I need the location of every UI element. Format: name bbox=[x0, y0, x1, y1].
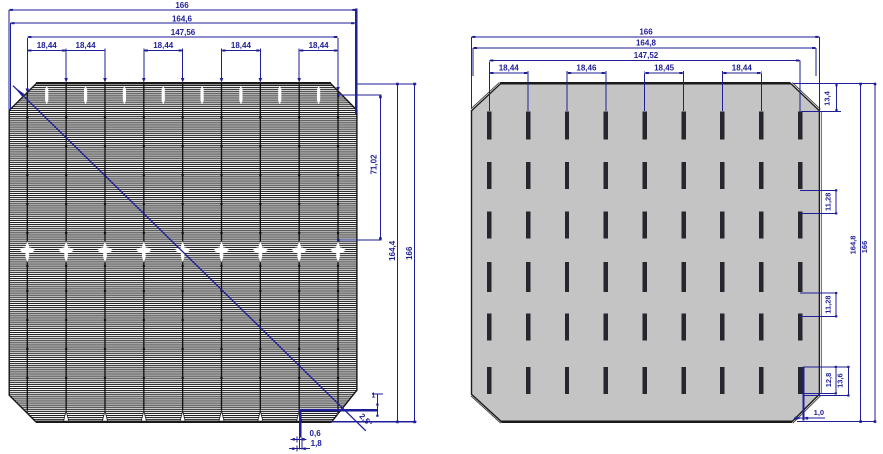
svg-text:147,56: 147,56 bbox=[171, 28, 196, 37]
svg-text:18,46: 18,46 bbox=[576, 64, 597, 73]
svg-text:164,4: 164,4 bbox=[388, 240, 397, 261]
svg-text:1,8: 1,8 bbox=[311, 439, 323, 448]
svg-text:13,6: 13,6 bbox=[836, 373, 845, 388]
svg-text:166: 166 bbox=[175, 1, 189, 10]
svg-text:166: 166 bbox=[639, 28, 653, 37]
svg-text:71,02: 71,02 bbox=[369, 154, 378, 175]
svg-text:166: 166 bbox=[405, 246, 414, 260]
svg-text:164,8: 164,8 bbox=[848, 236, 857, 255]
svg-text:18,44: 18,44 bbox=[732, 64, 753, 73]
svg-text:11,28: 11,28 bbox=[823, 193, 832, 211]
svg-text:18,44: 18,44 bbox=[37, 41, 58, 50]
svg-text:11,28: 11,28 bbox=[823, 295, 832, 313]
svg-text:12,8: 12,8 bbox=[824, 373, 833, 388]
svg-text:164,8: 164,8 bbox=[636, 39, 657, 48]
svg-text:18,44: 18,44 bbox=[309, 41, 330, 50]
svg-text:18,44: 18,44 bbox=[231, 41, 252, 50]
svg-text:147,52: 147,52 bbox=[634, 51, 659, 60]
svg-text:18,45: 18,45 bbox=[654, 64, 675, 73]
svg-text:164,6: 164,6 bbox=[172, 14, 193, 23]
svg-text:1,0: 1,0 bbox=[814, 408, 824, 417]
svg-text:1: 1 bbox=[372, 392, 376, 399]
svg-text:18,44: 18,44 bbox=[76, 41, 97, 50]
svg-text:18,44: 18,44 bbox=[499, 64, 520, 73]
svg-text:166: 166 bbox=[860, 241, 869, 254]
svg-text:0,6: 0,6 bbox=[310, 429, 322, 438]
svg-text:13,4: 13,4 bbox=[822, 90, 831, 105]
svg-text:18,44: 18,44 bbox=[153, 41, 174, 50]
